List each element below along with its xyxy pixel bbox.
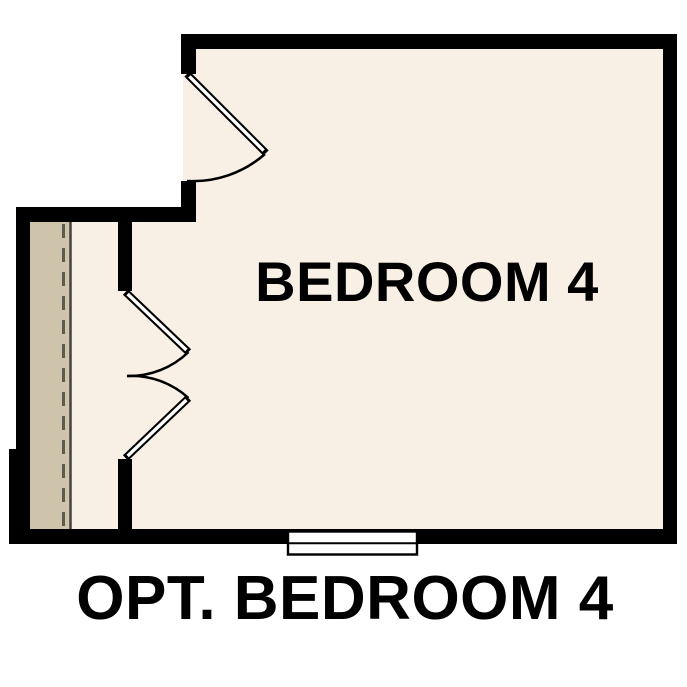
- left-wall-lower: [9, 449, 30, 530]
- top-wall: [181, 34, 677, 49]
- floor-plan-canvas: BEDROOM 4 OPT. BEDROOM 4: [0, 0, 687, 687]
- plan-caption: OPT. BEDROOM 4: [76, 568, 614, 630]
- entry-door-jamb-lower: [181, 181, 196, 222]
- closet-door-jamb-lower: [118, 459, 132, 530]
- closet-top-wall: [16, 207, 195, 222]
- room-label: BEDROOM 4: [255, 254, 599, 310]
- entry-door-jamb-upper: [181, 34, 196, 74]
- left-wall-upper: [16, 207, 30, 450]
- window: [288, 532, 417, 555]
- right-wall: [663, 34, 677, 544]
- closet-door-jamb-upper: [118, 221, 132, 291]
